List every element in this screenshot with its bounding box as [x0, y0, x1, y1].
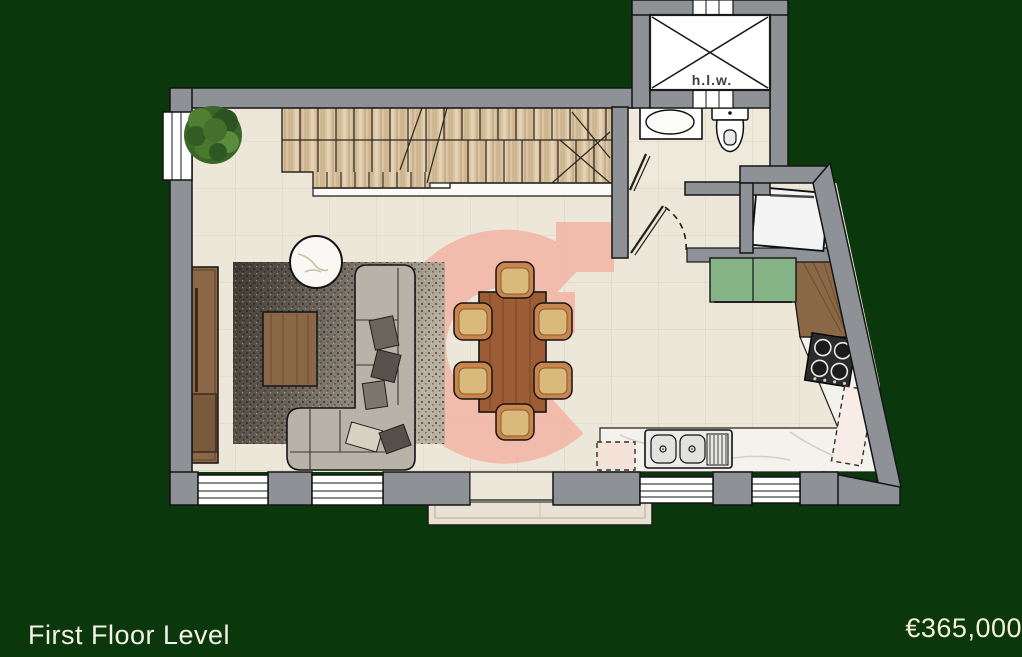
hall-wall	[612, 107, 628, 258]
floor-plan-image: h.l.w.	[0, 0, 1022, 657]
dishwasher	[597, 442, 635, 470]
shaft-bottom-opening	[693, 90, 733, 108]
shaft-left-wall	[632, 0, 650, 108]
floor-plan-page: h.l.w. First Floor Level €	[0, 0, 1022, 657]
coffee-table	[263, 312, 317, 386]
price-label: €365,000	[905, 613, 1022, 644]
bottom-wall-pier	[713, 472, 752, 505]
dining-chair	[534, 362, 572, 399]
bathroom-bottom-wall	[685, 182, 770, 195]
lift-shaft-label: h.l.w.	[692, 72, 732, 88]
bottom-wall-pier	[553, 472, 640, 505]
dining-chair	[454, 303, 492, 340]
top-wall	[170, 88, 634, 108]
window	[312, 475, 383, 505]
page-title: First Floor Level	[28, 620, 230, 651]
window	[198, 475, 268, 505]
staircase	[282, 107, 613, 196]
nook-left-wall	[740, 183, 753, 253]
green-cabinet	[710, 258, 796, 302]
lift-shaft: h.l.w.	[650, 15, 770, 90]
balcony-opening	[470, 472, 553, 502]
dining-chair	[534, 303, 572, 340]
dining-chair	[496, 404, 534, 440]
bottom-wall-pier	[800, 472, 838, 505]
window	[752, 477, 800, 503]
dining-chair	[496, 262, 534, 298]
bottom-wall-pier	[268, 472, 312, 505]
plant	[184, 106, 242, 164]
kitchen-sink	[645, 430, 732, 468]
bottom-wall-pier	[383, 472, 470, 505]
bottom-wall-pier	[170, 472, 198, 505]
shaft-right-wall	[770, 0, 788, 170]
dining-chair	[454, 362, 492, 399]
window	[640, 477, 713, 503]
round-side-table	[290, 236, 342, 288]
shaft-top-opening	[693, 0, 733, 15]
